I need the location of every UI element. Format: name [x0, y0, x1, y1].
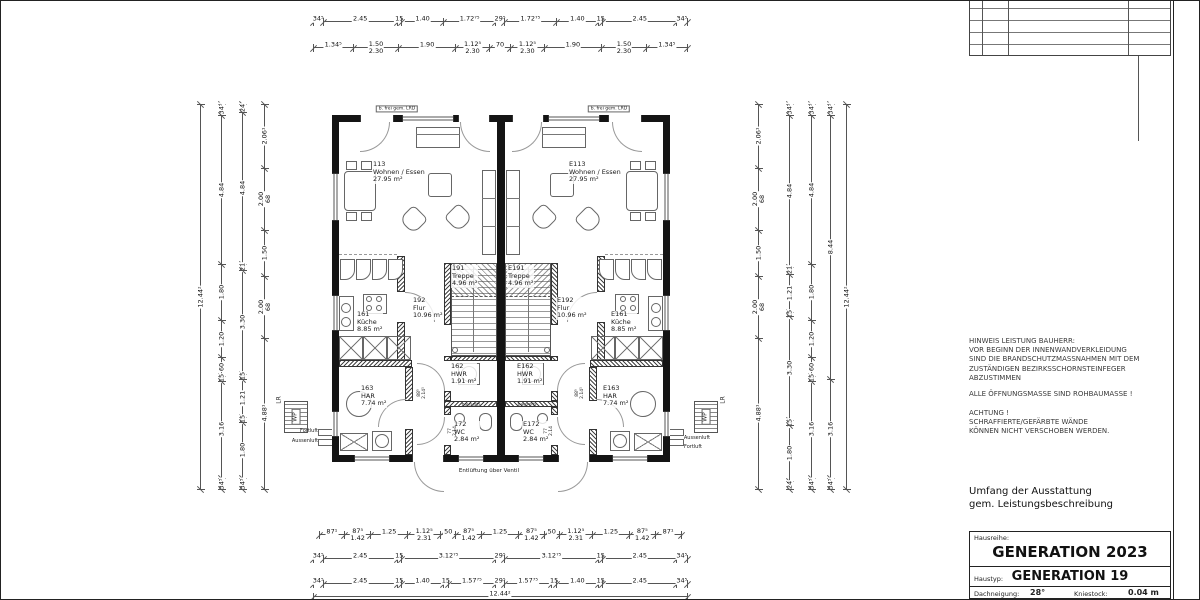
furn	[444, 203, 474, 233]
wx	[405, 367, 413, 401]
dim-label: 1.80	[240, 442, 247, 458]
div: 27.95 m²	[569, 176, 621, 184]
furn	[361, 212, 372, 221]
xbox	[339, 336, 363, 360]
dim-label: 4.84	[219, 181, 226, 197]
dim-label: 2.06¹	[756, 126, 763, 145]
furn	[346, 161, 357, 170]
dim-label: 4.88¹	[262, 404, 269, 423]
wx	[589, 429, 597, 455]
plan-annotation-bauseits: bauseits	[518, 402, 537, 407]
title-row-hausreihe: Hausreihe: GENERATION 2023	[970, 532, 1170, 566]
div: 10.96 m²	[557, 312, 587, 320]
q	[612, 122, 642, 152]
plan-annotation-lrd_box: b. frei gem. LRD	[588, 105, 630, 112]
dim-label: 2.45	[352, 553, 368, 560]
wx	[589, 367, 597, 401]
room-label-163: 163HAR7.74 m²	[360, 385, 387, 408]
plan-annotation-fortluft: Fortluft	[684, 445, 702, 451]
dim-label: 2.45	[352, 578, 368, 585]
winv	[332, 411, 339, 437]
furn	[630, 296, 636, 302]
dash	[339, 254, 397, 255]
floor-plan: 113Wohnen / Essen27.95 m²161Küche8.85 m²…	[332, 115, 670, 462]
wx	[339, 360, 412, 367]
dim-label: 1.25	[603, 529, 619, 536]
ln	[482, 226, 496, 227]
ln	[970, 32, 1170, 33]
dim-label: 1.90	[565, 42, 581, 49]
plan-annotation-aussenluft: Aussenluft	[684, 436, 710, 442]
furn	[645, 161, 656, 170]
dim-label: 3.16	[828, 420, 835, 436]
xbox	[363, 336, 387, 360]
furn	[375, 434, 389, 448]
furn	[346, 212, 357, 221]
plan-annotation-fortluft: Fortluft	[300, 429, 318, 435]
gap	[360, 115, 394, 122]
winh	[402, 115, 454, 122]
room-label-162: 162HWR1.91 m²	[450, 363, 477, 386]
room-label-E192: E192Flur10.96 m²	[556, 297, 588, 320]
dim-label: 4.84	[787, 183, 794, 199]
dimension-chain: 2.06¹2.00 681.502.00 684.88¹	[264, 104, 265, 489]
xbox	[615, 336, 639, 360]
plan-annotation-1: 77 2.14	[544, 426, 554, 436]
dim-label: 1.34⁵	[324, 42, 343, 49]
dim-label: 50	[443, 529, 453, 536]
dimension-chain: 34⁵2.45151.40151.57⁷⁵29⁵1.57⁷⁵151.40152.…	[313, 583, 687, 584]
note-hinweis: HINWEIS LEISTUNG BAUHERR: VOR BEGINN DER…	[969, 337, 1169, 383]
title-block: Hausreihe: GENERATION 2023 Haustyp: GENE…	[969, 531, 1171, 600]
lnv	[1128, 0, 1129, 55]
dim-label: 3.30	[787, 360, 794, 376]
kniestock-value: 0.04 m	[1128, 588, 1159, 597]
winh	[612, 455, 648, 462]
dachneigung-value: 28°	[1030, 588, 1045, 597]
div: 7.74 m²	[603, 400, 628, 408]
q	[360, 122, 390, 152]
ln	[542, 134, 586, 135]
wx	[444, 356, 451, 361]
furn	[482, 170, 496, 255]
room-label-E162: E162HWR1.91 m²	[516, 363, 543, 386]
lnv	[1008, 0, 1009, 55]
ln	[970, 44, 1170, 45]
title-row-dach: Dachneigung: 28° Kniestock: 0.04 m	[970, 586, 1170, 598]
ln	[482, 198, 496, 199]
dim-label: 87¹	[325, 529, 338, 536]
furn	[613, 434, 627, 448]
furn	[341, 317, 351, 327]
w	[663, 115, 670, 462]
furn	[529, 203, 559, 233]
dim-label: 1.72⁷⁵	[459, 16, 481, 23]
winv	[332, 295, 339, 331]
dimension-chain: 87¹87⁵ 1.421.251.12⁵ 2.315087⁵ 1.421.258…	[319, 534, 681, 535]
furn	[647, 259, 662, 280]
dimension-chain: 12.44²	[846, 104, 847, 489]
dim-label: 1.25	[381, 529, 397, 536]
dim-label: 2.00 68	[258, 190, 272, 206]
dim-label: 1.57⁷⁵	[461, 578, 483, 585]
div: 8.85 m²	[611, 326, 636, 334]
furn	[574, 205, 604, 235]
dim-label: 1.12⁵ 2.31	[415, 528, 434, 542]
gap	[608, 115, 642, 122]
plan-annotation-lr: LR	[277, 396, 284, 404]
dim-label: 1.34⁵	[657, 42, 676, 49]
furn	[599, 259, 614, 280]
wx	[451, 356, 497, 361]
div: 4.96 m²	[452, 280, 477, 288]
dim-label: 60	[809, 361, 816, 371]
dim-label: 87⁵ 1.42	[460, 528, 476, 542]
dim-label: 1.80	[787, 445, 794, 461]
furn	[479, 413, 492, 431]
wx	[505, 356, 551, 361]
revision-table	[969, 0, 1171, 56]
dim-label: 8.44	[828, 239, 835, 255]
q	[512, 122, 542, 152]
dim-label: 1.72⁷⁵	[520, 16, 542, 23]
xbox	[639, 336, 663, 360]
note-oeffnungsmasse: ALLE ÖFFNUNGSMASSE SIND ROHBAUMASSE !	[969, 390, 1169, 398]
furn	[626, 171, 658, 211]
dim-label: 1.50 2.30	[616, 41, 632, 55]
dim-label: 3.12⁷⁵	[541, 553, 563, 560]
dim-label: 1.25	[492, 529, 508, 536]
furn	[372, 259, 387, 280]
dim-label: 1.20	[219, 330, 226, 346]
winv	[663, 173, 670, 221]
note-umfang-ausstattung: Umfang der Ausstattung gem. Leistungsbes…	[969, 485, 1169, 511]
dimension-chain: 12.44²	[313, 596, 687, 597]
dim-label: 4.84	[809, 181, 816, 197]
furn	[645, 212, 656, 221]
dim-label: 1.12⁵ 2.31	[566, 528, 585, 542]
wx	[444, 391, 451, 401]
q	[558, 462, 588, 492]
dim-label: 1.50	[262, 245, 269, 261]
xbox	[387, 336, 411, 360]
plan-annotation-lr: LR	[721, 396, 728, 404]
dim-label: 1.50	[756, 245, 763, 261]
plan-annotation-entlueftung: Entlüftung über Ventil	[459, 468, 519, 474]
ln	[506, 198, 520, 199]
gap	[512, 115, 544, 122]
note-achtung: ACHTUNG ! SCHRAFFIERTE/GEFÄRBTE WÄNDE KÖ…	[969, 409, 1169, 437]
room-label-E191: E191Treppe4.96 m²	[507, 265, 534, 288]
hausreihe-label: Hausreihe:	[974, 534, 1009, 542]
wx	[590, 360, 663, 367]
title-row-haustyp: Haustyp: GENERATION 19	[970, 566, 1170, 586]
winv	[663, 411, 670, 437]
dim-label: 87⁵ 1.42	[523, 528, 539, 542]
dim-label: 3.16	[219, 421, 226, 437]
dim-label: 2.45	[632, 16, 648, 23]
dim-label: 1.80	[809, 284, 816, 300]
furn	[506, 170, 520, 255]
lnv	[982, 0, 983, 55]
dim-label: 87⁵ 1.42	[349, 528, 365, 542]
dim-label: 1.40	[414, 16, 430, 23]
wx	[444, 263, 451, 325]
furn	[416, 127, 460, 148]
winv	[663, 295, 670, 331]
wx	[551, 356, 558, 361]
dim-label: 4.88¹	[756, 404, 763, 423]
dim-label: 1.50 2.30	[368, 41, 384, 55]
plan-annotation-lrd_box: b. frei gem. LRD	[376, 105, 418, 112]
furn	[651, 317, 661, 327]
dim-label: 50	[547, 529, 557, 536]
dim-label: 12.44²	[198, 285, 205, 308]
furn	[544, 347, 550, 353]
gap	[412, 455, 444, 462]
div: 2.84 m²	[523, 436, 548, 444]
wx	[551, 391, 558, 401]
dash	[605, 254, 663, 255]
dim-label: 60	[219, 361, 226, 371]
wx	[405, 429, 413, 455]
table-stub-line	[1138, 56, 1139, 141]
dim-label: 2.45	[632, 578, 648, 585]
winh	[354, 455, 390, 462]
div: 1.91 m²	[451, 378, 476, 386]
furn	[615, 259, 630, 280]
furn	[630, 212, 641, 221]
dim-label: 1.90	[419, 42, 435, 49]
dimension-chain: 12.44²	[200, 104, 201, 489]
furn	[340, 259, 355, 280]
dimension-chain: 2.06¹2.00 681.502.00 684.88¹	[758, 104, 759, 489]
winh	[458, 455, 484, 462]
wx	[551, 445, 558, 455]
furn	[356, 259, 371, 280]
furn	[399, 205, 429, 235]
gap	[458, 115, 490, 122]
furn	[341, 303, 351, 313]
room-label-E163: E163HAR7.74 m²	[602, 385, 629, 408]
div: 10.96 m²	[413, 312, 443, 320]
dimension-chain: 34⁵4.841.801.2060153.1634⁵	[811, 104, 812, 489]
furn	[668, 429, 684, 436]
ln	[506, 226, 520, 227]
furn	[361, 161, 372, 170]
dim-label: 12.44²	[844, 285, 851, 308]
div: 7.74 m²	[361, 400, 386, 408]
haustyp-value: GENERATION 19	[970, 569, 1170, 584]
dimension-chain: 1.34⁵1.50 2.301.901.12⁵ 2.30701.12⁵ 2.30…	[313, 47, 687, 48]
dim-label: 1.12⁵ 2.30	[463, 41, 482, 55]
div: 1.91 m²	[517, 378, 542, 386]
dim-label: 1.21	[787, 284, 794, 300]
wx	[444, 407, 451, 415]
q	[460, 122, 490, 152]
dim-label: 1.20	[809, 330, 816, 346]
plan-annotation-1: 77 2.14	[448, 426, 458, 436]
dim-label: 87⁵ 1.42	[634, 528, 650, 542]
dim-label: 3.30	[240, 314, 247, 330]
dim-label: 12.44²	[488, 591, 511, 598]
furn	[620, 296, 626, 302]
hausreihe-value: GENERATION 2023	[970, 543, 1170, 561]
xbox	[634, 433, 662, 451]
furn	[630, 391, 656, 417]
frame-line-right	[1173, 1, 1174, 600]
dim-label: 2.06¹	[262, 126, 269, 145]
room-label-113: 113Wohnen / Essen27.95 m²	[372, 161, 426, 184]
dim-label: 1.40	[569, 578, 585, 585]
dim-label: 1.12⁵ 2.30	[518, 41, 537, 55]
dim-label: 2.00 68	[258, 299, 272, 315]
drawing-sheet: HINWEIS LEISTUNG BAUHERR: VOR BEGINN DER…	[0, 0, 1200, 600]
dim-label: 1.80	[219, 284, 226, 300]
room-label-E113: E113Wohnen / Essen27.95 m²	[568, 161, 622, 184]
dim-label: 1.57⁷⁵	[517, 578, 539, 585]
xbox	[340, 433, 368, 451]
winv	[332, 173, 339, 221]
dim-label: 1.40	[569, 16, 585, 23]
div: 4.96 m²	[508, 280, 533, 288]
dachneigung-label: Dachneigung:	[974, 590, 1019, 598]
plan-annotation-0: 88⁵ 2.14¹	[575, 387, 585, 399]
dim-label: 70	[495, 42, 505, 49]
q	[557, 417, 585, 445]
dim-label: 2.00 68	[752, 299, 766, 315]
plan-annotation-wp: WP	[292, 409, 301, 425]
room-label-192: 192Flur10.96 m²	[412, 297, 444, 320]
furn	[630, 161, 641, 170]
room-label-161: 161Küche8.85 m²	[356, 311, 383, 334]
winh	[548, 115, 600, 122]
div: 27.95 m²	[373, 176, 425, 184]
q	[414, 462, 444, 492]
gap	[558, 455, 590, 462]
ln	[970, 8, 1170, 9]
dimension-chain: 34⁵4.841.801.2060153.1634⁵	[221, 104, 222, 489]
kniestock-label: Kniestock:	[1074, 590, 1108, 598]
wx	[551, 407, 558, 415]
dimension-chain: 34⁵2.45153.12⁷⁵29⁵3.12⁷⁵152.4534⁵	[313, 558, 687, 559]
furn	[376, 296, 382, 302]
dim-label: 1.21	[240, 390, 247, 406]
furn	[428, 173, 452, 197]
plan-annotation-0: 88⁵ 2.14¹	[417, 387, 427, 399]
furn	[366, 296, 372, 302]
dim-label: 2.00 68	[752, 190, 766, 206]
dimension-chain: 34⁵8.443.1634⁵	[830, 104, 831, 489]
xbox	[591, 336, 615, 360]
w	[332, 115, 339, 462]
plan-annotation-aussenluft: Aussenluft	[292, 439, 318, 445]
furn	[631, 259, 646, 280]
q	[417, 417, 445, 445]
ln	[416, 134, 460, 135]
dim-label: 3.16	[809, 421, 816, 437]
ln	[970, 20, 1170, 21]
dim-label: 87¹	[662, 529, 675, 536]
furn	[542, 127, 586, 148]
room-label-E161: E161Küche8.85 m²	[610, 311, 637, 334]
dimension-chain: 34⁵2.45151.401.72⁷⁵29⁵1.72⁷⁵1.40152.4534…	[313, 21, 687, 22]
wx	[444, 445, 451, 455]
dimension-chain: 244.84213.30151.21151.8034⁵	[242, 104, 243, 489]
div: 2.84 m²	[454, 436, 479, 444]
plan-annotation-wp: WP	[702, 409, 711, 425]
dim-label: 4.84	[240, 179, 247, 195]
furn	[668, 439, 684, 446]
furn	[452, 347, 458, 353]
dimension-chain: 34⁵4.84211.21153.30151.8024	[789, 104, 790, 489]
furn	[651, 303, 661, 313]
div: 8.85 m²	[357, 326, 382, 334]
plan-annotation-bauseits: bauseits	[462, 402, 481, 407]
dim-label: 2.45	[352, 16, 368, 23]
dim-label: 2.45	[632, 553, 648, 560]
winh	[518, 455, 544, 462]
room-label-191: 191Treppe4.96 m²	[451, 265, 478, 288]
dim-label: 3.12⁷⁵	[438, 553, 460, 560]
dim-label: 1.40	[414, 578, 430, 585]
